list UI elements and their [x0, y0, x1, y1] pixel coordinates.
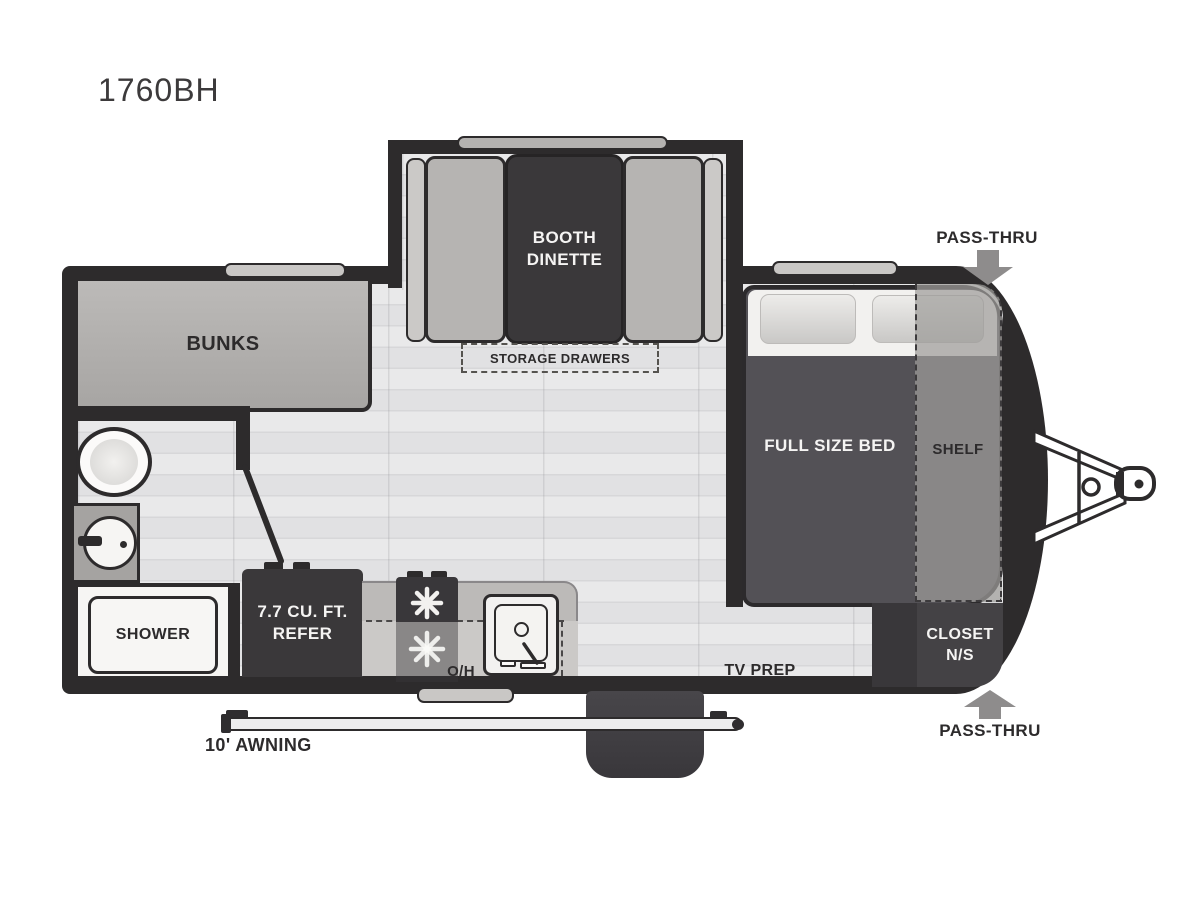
- closet-divider: [872, 603, 917, 687]
- kitchen-faucet-icon: [514, 622, 529, 637]
- refrigerator: 7.7 CU. FT. REFER: [242, 569, 363, 677]
- entry-step-icon: [586, 691, 704, 778]
- closet-label-line1: CLOSET: [926, 624, 993, 645]
- bath-faucet-knob: [120, 541, 127, 548]
- tv-prep-label: TV PREP: [700, 662, 820, 680]
- stove-upper: [396, 577, 458, 622]
- slideout-handle-bar: [457, 136, 668, 150]
- storage-drawers-label: STORAGE DRAWERS: [490, 351, 630, 366]
- bunks-label: BUNKS: [78, 333, 368, 356]
- dinette-bench-right: [623, 156, 704, 343]
- shelf-label: SHELF: [913, 441, 1003, 458]
- overhead-cabinet-dash-v: [561, 621, 563, 676]
- toilet-bowl-inner: [90, 439, 138, 485]
- bunks-window-icon: [224, 263, 346, 278]
- dinette-bench-left: [425, 156, 506, 343]
- sink-ledge-1: [500, 660, 516, 667]
- shower-pan: SHOWER: [88, 596, 218, 674]
- hitch-icon: [1034, 431, 1154, 544]
- closet: CLOSET N/S: [917, 603, 1003, 687]
- shower-label: SHOWER: [116, 626, 190, 644]
- bathroom-north-wall: [62, 406, 250, 421]
- pass-thru-bottom-label: PASS-THRU: [910, 721, 1070, 741]
- bathroom-wall-stub: [236, 406, 250, 470]
- overhead-label: O/H: [436, 663, 486, 680]
- bath-faucet-icon: [78, 536, 102, 546]
- floorplan-title: 1760BH: [98, 72, 220, 109]
- floorplan-canvas: 1760BH BUNKS SHOWER 7.7 CU. FT. REFER: [0, 0, 1200, 900]
- storage-drawers-outline: STORAGE DRAWERS: [461, 343, 659, 373]
- bed-label: FULL SIZE BED: [742, 436, 918, 456]
- dinette-armrest-left: [406, 158, 426, 342]
- pass-thru-top-label: PASS-THRU: [907, 228, 1067, 248]
- closet-label-line2: N/S: [946, 645, 974, 666]
- dinette-label-line1: BOOTH: [533, 227, 596, 249]
- sink-ledge-2: [520, 662, 546, 669]
- pass-thru-arrow-bottom-icon: [964, 690, 1016, 719]
- bed-pillow-left: [760, 294, 856, 344]
- bedroom-window-icon: [772, 261, 898, 276]
- refer-label-line2: REFER: [273, 623, 333, 645]
- kitchen-window-icon: [417, 687, 514, 703]
- dinette-slideout-left-wall: [388, 140, 402, 288]
- dinette-label-line2: DINETTE: [527, 249, 603, 271]
- dinette-table: BOOTH DINETTE: [505, 154, 624, 344]
- awning-left-cap: [221, 714, 231, 733]
- dinette-armrest-right: [703, 158, 723, 342]
- awning-right-tip: [732, 719, 744, 730]
- bedroom-divider-wall: [726, 140, 743, 607]
- refer-label-line1: 7.7 CU. FT.: [257, 601, 347, 623]
- bunks: BUNKS: [78, 281, 372, 412]
- awning-label: 10' AWNING: [205, 735, 345, 756]
- awning-bar-icon: [224, 717, 742, 731]
